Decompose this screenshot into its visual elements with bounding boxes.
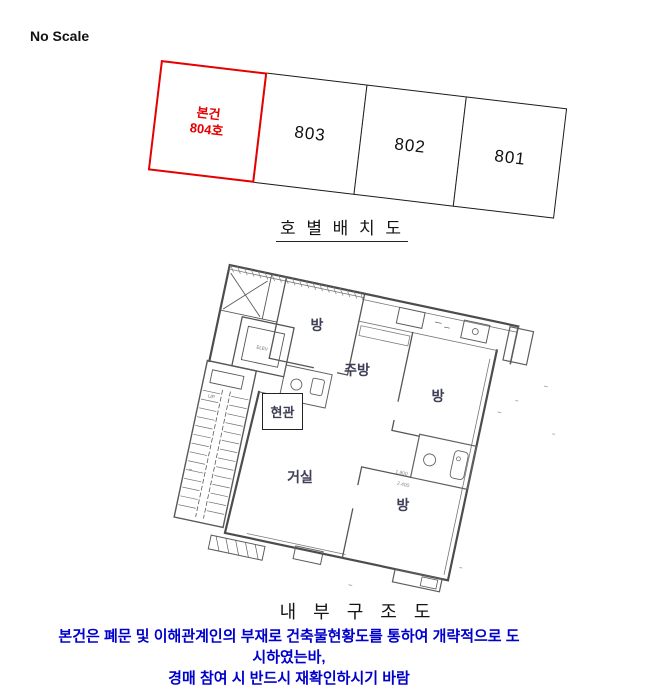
label-room-bottom: 방 <box>397 495 410 515</box>
corridor-fixtures <box>393 301 534 366</box>
bottom-fixtures <box>208 528 442 596</box>
unit-number: 802 <box>393 134 427 158</box>
unit-number: 803 <box>293 122 327 146</box>
no-scale-note: No Scale <box>30 28 89 44</box>
floor-plan-drawing: ELEV <box>143 250 563 596</box>
subject-unit-number: 804호 <box>189 119 224 139</box>
unit-layout-diagram: 본건 804호 803 802 801 <box>148 60 567 219</box>
bathroom <box>411 434 477 489</box>
label-room-right: 방 <box>432 386 445 406</box>
dim-note-2: 2.400 <box>396 481 410 490</box>
notice-line-2: 경매 참여 시 반드시 재확인하시기 바람 <box>58 668 520 689</box>
unit-box-803: 803 <box>253 73 367 195</box>
auction-notice: 본건은 폐문 및 이해관계인의 부재로 건축물현황도를 통하여 개략적으로 도시… <box>58 626 520 689</box>
elevator-label: ELEV <box>256 344 268 351</box>
unit-diagram-title: 호 별 배 치 도 <box>276 214 408 242</box>
entrance-label-box: 현관 <box>262 393 303 430</box>
unit-box-801: 801 <box>453 96 567 218</box>
dim-note-1: 1.800 <box>395 469 409 478</box>
kitchen-counter <box>359 326 410 346</box>
label-entrance: 현관 <box>271 402 295 421</box>
unit-number: 801 <box>493 146 527 170</box>
room-right-walls <box>392 333 440 437</box>
label-room-top: 방 <box>311 315 324 335</box>
notice-line-1: 본건은 폐문 및 이해관계인의 부재로 건축물현황도를 통하여 개략적으로 도시… <box>58 626 520 668</box>
label-living-room: 거실 <box>287 467 313 487</box>
stair-up-label: UP <box>207 393 216 400</box>
unit-box-804-subject: 본건 804호 <box>148 60 267 183</box>
balcony-top-left <box>220 265 286 322</box>
stairwell: UP <box>174 361 256 528</box>
floor-plan: ELEV <box>143 250 563 596</box>
dimension-notes: 1.800 2.400 <box>392 469 412 489</box>
label-kitchen: 주방 <box>344 360 370 380</box>
unit-box-802: 802 <box>353 84 467 206</box>
floor-plan-title: 내 부 구 조 도 <box>280 598 437 624</box>
